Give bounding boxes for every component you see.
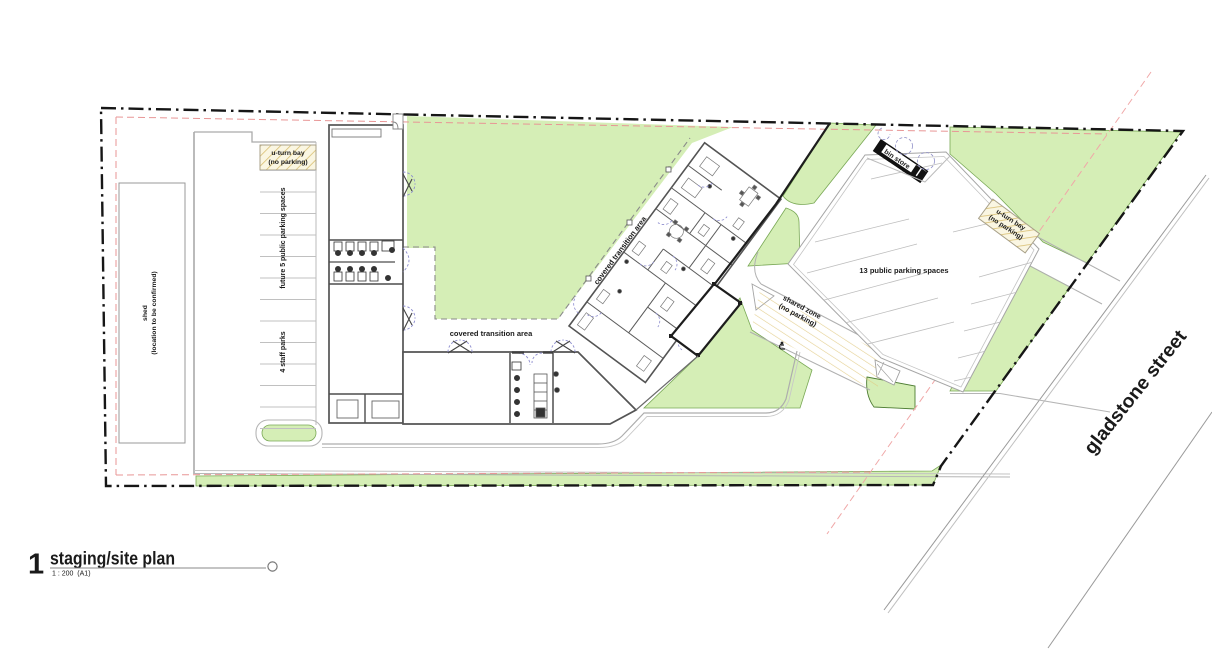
svg-text:1 : 200 (A1): 1 : 200 (A1): [52, 571, 91, 578]
svg-text:covered transition area: covered transition area: [450, 329, 533, 338]
svg-text:13 public parking spaces: 13 public parking spaces: [859, 266, 948, 275]
svg-text:(location to be confirmed): (location to be confirmed): [151, 271, 158, 354]
svg-text:(no parking): (no parking): [268, 159, 307, 166]
svg-text:future 5 public parking spaces: future 5 public parking spaces: [280, 187, 287, 288]
svg-text:1: 1: [28, 549, 44, 581]
svg-text:4 staff parks: 4 staff parks: [280, 331, 287, 372]
svg-text:staging/site plan: staging/site plan: [50, 549, 175, 569]
svg-text:shed: shed: [142, 305, 149, 321]
svg-text:u-turn bay: u-turn bay: [271, 150, 304, 157]
